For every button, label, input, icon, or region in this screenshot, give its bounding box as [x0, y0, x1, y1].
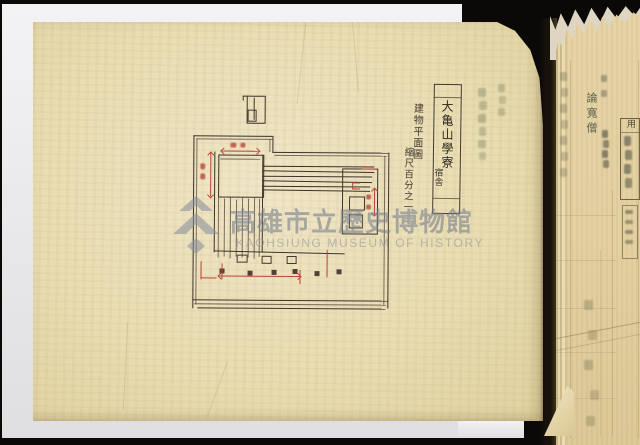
- sill-mark: [237, 255, 248, 263]
- form-grid-line: [570, 60, 571, 438]
- form-grid-line: [600, 250, 601, 436]
- boundary-wall: [274, 155, 387, 157]
- dimension-arrow: [220, 147, 227, 154]
- boundary-wall: [272, 136, 274, 153]
- form-grid-line: [612, 190, 613, 436]
- dimension-line: [362, 168, 376, 169]
- book-gutter-shadow: [540, 18, 557, 445]
- watermark-title-latin: KAOHSIUNG MUSEUM OF HISTORY: [236, 236, 484, 250]
- wall-line: [243, 96, 244, 101]
- boundary-wall: [197, 307, 385, 309]
- dimension-text-mark: [200, 163, 205, 169]
- post-marker: [272, 270, 277, 275]
- floor-edge-line: [214, 250, 345, 254]
- plan-room: [218, 154, 264, 197]
- form-grid-line: [556, 352, 616, 353]
- boundary-wall: [269, 139, 270, 152]
- dimension-tick: [352, 188, 360, 189]
- sill-mark: [262, 256, 272, 264]
- dimension-tick: [327, 250, 328, 277]
- dimension-arrow: [207, 151, 214, 158]
- dimension-tick: [200, 277, 216, 278]
- dimension-line: [210, 152, 211, 196]
- corridor-line: [262, 166, 374, 168]
- paper-crease: [352, 22, 359, 92]
- dimension-line: [220, 275, 300, 277]
- boundary-wall: [194, 303, 386, 306]
- plan-small-box: [248, 110, 257, 122]
- watermark-title-cjk: 高雄市立歷史博物館: [230, 202, 473, 239]
- box-divider: [435, 97, 461, 98]
- side-page-printed-label: 論寬僧: [583, 92, 599, 148]
- backing-sheet-edge: [458, 420, 524, 438]
- boundary-wall: [196, 138, 272, 140]
- paper-crease: [207, 362, 228, 417]
- paper-crease: [123, 322, 129, 410]
- boundary-wall: [192, 299, 388, 302]
- boundary-wall: [193, 135, 272, 137]
- scanned-document-photo: 大亀山學寮 宿舎 建物平面圖 縮尺百分之一 高雄市立歷史博物館 KAOHSIUN…: [0, 0, 640, 445]
- dimension-tick: [299, 270, 300, 284]
- dimension-tick: [352, 182, 353, 189]
- dimension-text-mark: [230, 143, 236, 148]
- post-marker: [337, 269, 342, 274]
- post-marker: [315, 271, 320, 276]
- album-page: 大亀山學寮 宿舎 建物平面圖 縮尺百分之一 高雄市立歷史博物館 KAOHSIUN…: [33, 22, 543, 421]
- adjacent-page-stack: 論寬僧 用: [556, 8, 640, 445]
- dimension-arrow: [253, 148, 260, 155]
- form-grid-line: [638, 60, 639, 438]
- boundary-wall: [272, 152, 389, 154]
- dimension-text-mark: [200, 173, 205, 179]
- form-field-char: 用: [624, 119, 637, 131]
- plan-title-subtext: 宿舎: [432, 168, 444, 198]
- form-grid-line: [556, 215, 616, 216]
- dimension-text-mark: [240, 143, 245, 148]
- dimension-tick: [221, 263, 222, 279]
- form-grid-line: [556, 260, 616, 261]
- sill-mark: [287, 256, 297, 264]
- museum-logo-icon: [168, 196, 224, 254]
- dimension-text-mark: [366, 195, 371, 200]
